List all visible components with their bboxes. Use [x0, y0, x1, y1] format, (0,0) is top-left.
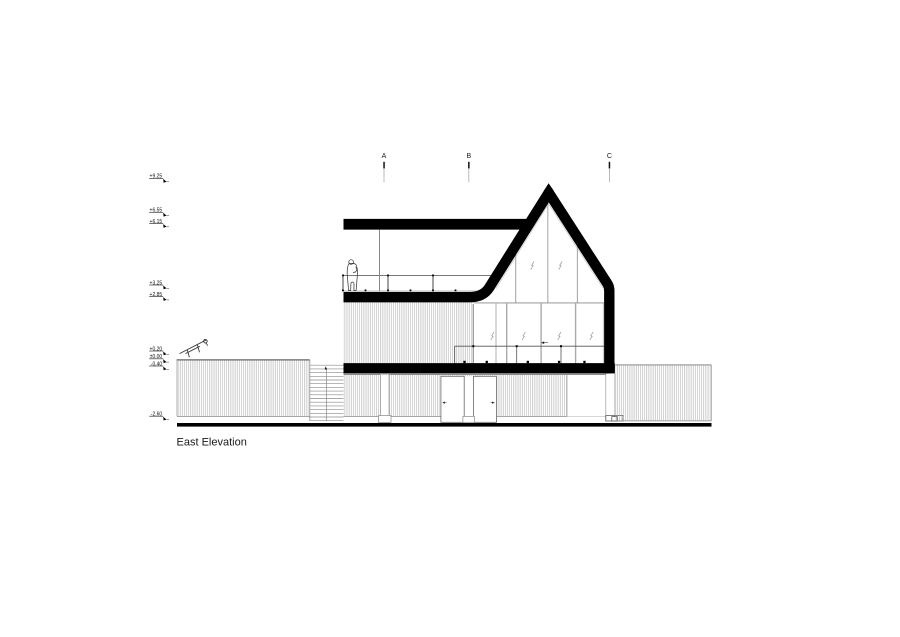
svg-text:C: C	[607, 153, 612, 160]
svg-text:B: B	[466, 153, 471, 160]
svg-text:-2.60: -2.60	[151, 412, 163, 418]
svg-text:+3.25: +3.25	[150, 280, 163, 286]
svg-text:+2.85: +2.85	[150, 292, 163, 298]
svg-text:East Elevation: East Elevation	[177, 436, 247, 448]
svg-text:±0.00: ±0.00	[150, 354, 163, 360]
svg-text:+0.20: +0.20	[150, 346, 163, 352]
svg-text:+6.55: +6.55	[150, 208, 163, 214]
svg-text:+9.25: +9.25	[150, 174, 163, 180]
svg-text:+6.15: +6.15	[150, 219, 163, 225]
svg-text:-0.40: -0.40	[151, 361, 163, 367]
svg-text:A: A	[382, 153, 387, 160]
